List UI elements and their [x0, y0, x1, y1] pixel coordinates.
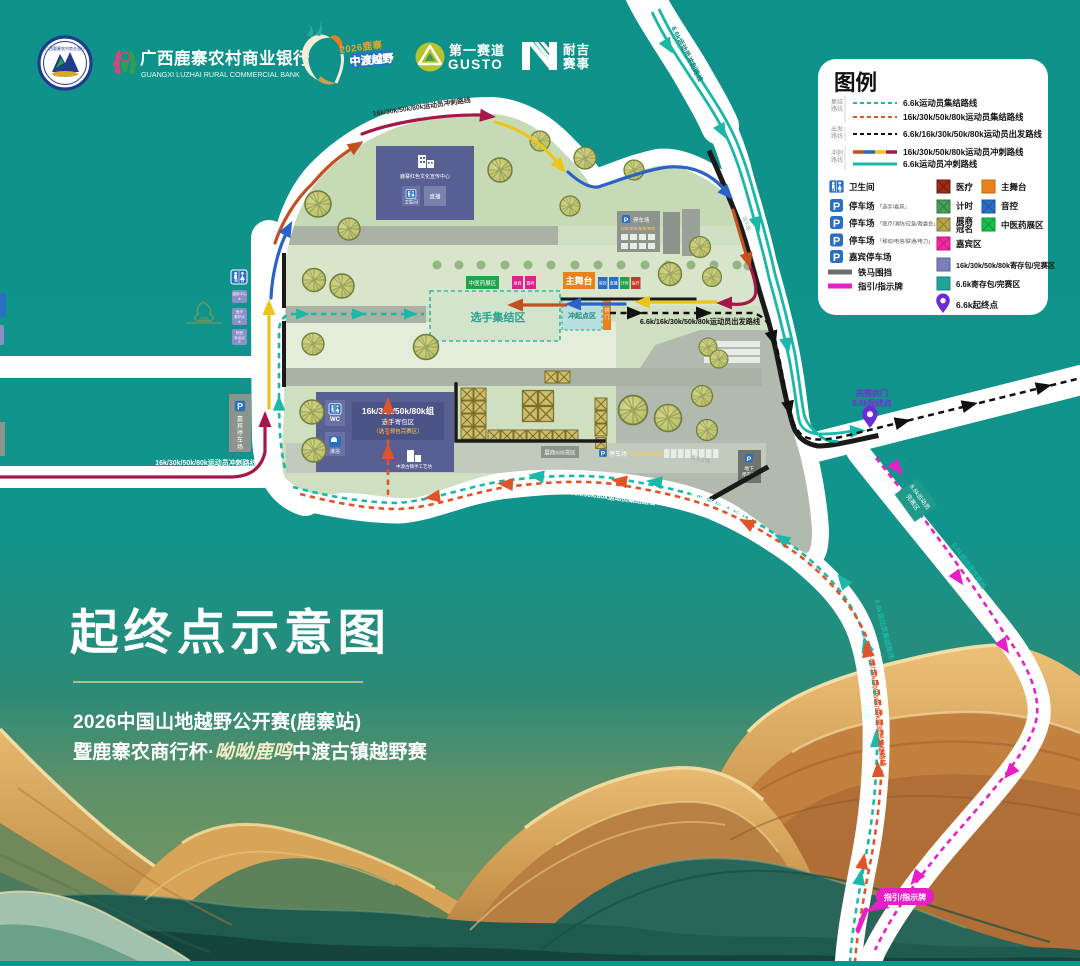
- svg-text:路线: 路线: [831, 105, 843, 113]
- svg-text:门: 门: [604, 314, 609, 321]
- svg-text:音控: 音控: [599, 280, 607, 286]
- svg-text:冲刺: 冲刺: [831, 149, 843, 157]
- svg-text:选手集结区: 选手集结区: [471, 310, 526, 324]
- svg-text:16k/30k/50k/80k运动员冲刺路线: 16k/30k/50k/80k运动员冲刺路线: [155, 458, 257, 467]
- svg-text:停车场: 停车场: [849, 236, 875, 246]
- svg-text:嘉宾区: 嘉宾区: [955, 239, 982, 249]
- svg-text:路线: 路线: [831, 132, 843, 140]
- svg-text:16k/30k/50k/80k运动员集结路线: 16k/30k/50k/80k运动员集结路线: [903, 112, 1024, 122]
- svg-text:2026中国山地越野公开赛(鹿寨站): 2026中国山地越野公开赛(鹿寨站): [73, 710, 361, 733]
- svg-text:16k/30k/50k/80k: 16k/30k/50k/80k: [630, 452, 667, 458]
- svg-text:车: 车: [237, 436, 243, 444]
- svg-text:接驳中心: 接驳中心: [232, 291, 247, 296]
- svg-text:6.6k运动员集结路线: 6.6k运动员集结路线: [903, 98, 978, 108]
- svg-text:音控: 音控: [1001, 201, 1019, 211]
- svg-text:淋浴: 淋浴: [330, 448, 340, 455]
- svg-text:WC: WC: [330, 417, 341, 423]
- svg-text:停车场: 停车场: [849, 201, 875, 211]
- svg-text:出发: 出发: [831, 125, 843, 133]
- svg-text:中渡古镇手工艺坊: 中渡古镇手工艺坊: [396, 463, 432, 470]
- svg-text:「选手/嘉宾」: 「选手/嘉宾」: [877, 203, 910, 211]
- svg-text:铁马围挡: 铁马围挡: [858, 268, 893, 278]
- svg-text:场: 场: [237, 443, 243, 451]
- svg-text:赛事: 赛事: [562, 56, 590, 71]
- svg-text:宾: 宾: [237, 422, 243, 430]
- svg-text:「移动/电信/联通/电力」: 「移动/电信/联通/电力」: [877, 237, 933, 245]
- svg-text:16k/30k/50k/80k寄存包/完赛区: 16k/30k/50k/80k寄存包/完赛区: [956, 261, 1055, 270]
- svg-text:中医药展区: 中医药展区: [469, 279, 497, 287]
- svg-text:医疗: 医疗: [236, 309, 244, 314]
- svg-text:16k/30k/50k/80k: 16k/30k/50k/80k: [621, 226, 657, 232]
- svg-text:冠名: 冠名: [956, 224, 973, 234]
- svg-text:停: 停: [237, 429, 243, 437]
- svg-text:冲起点区: 冲起点区: [568, 311, 596, 320]
- svg-text:路线: 路线: [831, 156, 843, 164]
- svg-text:集结: 集结: [831, 98, 843, 106]
- svg-text:广西鹿寨农村商业银行: 广西鹿寨农村商业银行: [45, 45, 85, 51]
- svg-text:中医药展区: 中医药展区: [1001, 220, 1044, 230]
- svg-text:医疗: 医疗: [956, 182, 974, 192]
- svg-text:香樟: 香樟: [200, 315, 208, 321]
- svg-text:6.6k运动员冲刺路线: 6.6k运动员冲刺路线: [903, 159, 978, 169]
- svg-text:鹿寨红色文化宣传中心: 鹿寨红色文化宣传中心: [400, 173, 450, 180]
- svg-text:停车场: 停车场: [849, 218, 875, 228]
- svg-text:展商600货区: 展商600货区: [544, 449, 576, 457]
- svg-text:暨鹿寨农商行杯·呦呦鹿鸣中渡古镇越野赛: 暨鹿寨农商行杯·呦呦鹿鸣中渡古镇越野赛: [73, 740, 428, 763]
- svg-text:GUSTO: GUSTO: [448, 57, 503, 72]
- svg-text:卫生间: 卫生间: [404, 199, 418, 206]
- svg-text:GUANGXI LUZHAI RURAL COMMERCIA: GUANGXI LUZHAI RURAL COMMERCIAL BANK: [141, 70, 300, 79]
- svg-text:指引/指示牌: 指引/指示牌: [858, 282, 903, 292]
- svg-text:直播: 直播: [610, 280, 618, 286]
- svg-text:指引/指示牌: 指引/指示牌: [884, 892, 926, 902]
- svg-text:广西鹿寨农村商业银行: 广西鹿寨农村商业银行: [140, 48, 310, 68]
- svg-text:起终点示意图: 起终点示意图: [70, 606, 391, 660]
- svg-text:〔选手领包完赛区〕: 〔选手领包完赛区〕: [373, 427, 423, 435]
- svg-text:16k/30k/50k/80k组: 16k/30k/50k/80k组: [362, 406, 435, 416]
- svg-text:主舞台: 主舞台: [1001, 182, 1027, 192]
- svg-text:完赛拱门: 完赛拱门: [856, 388, 888, 398]
- svg-text:嘉宾: 嘉宾: [527, 280, 535, 286]
- svg-text:「医疗/消防/应急/裁委会」: 「医疗/消防/应急/裁委会」: [877, 220, 938, 228]
- svg-text:停车场: 停车场: [609, 450, 627, 458]
- svg-text:拱: 拱: [604, 307, 609, 314]
- svg-text:医疗: 医疗: [632, 280, 640, 286]
- svg-text:救护点: 救护点: [234, 314, 245, 319]
- svg-text:第一赛道: 第一赛道: [449, 43, 505, 58]
- svg-text:计时: 计时: [621, 280, 629, 286]
- svg-text:展商: 展商: [514, 280, 522, 286]
- svg-text:耐吉: 耐吉: [563, 42, 590, 57]
- svg-text:6.6k/16k/30k/50k/80k运动员出发路线: 6.6k/16k/30k/50k/80k运动员出发路线: [903, 129, 1043, 139]
- svg-text:16k/30k/50k/80k运动员冲刺路线: 16k/30k/50k/80k运动员冲刺路线: [903, 147, 1024, 157]
- svg-text:6.6k寄存包/完赛区: 6.6k寄存包/完赛区: [956, 279, 1020, 289]
- svg-text:图例: 图例: [834, 71, 877, 95]
- svg-text:6.6k起终点: 6.6k起终点: [956, 300, 999, 310]
- svg-text:卫生间: 卫生间: [849, 182, 875, 192]
- svg-text:物资: 物资: [236, 330, 244, 335]
- svg-text:6.6k/16k/30k/50k/80k运动员出发路线: 6.6k/16k/30k/50k/80k运动员出发路线: [640, 317, 761, 326]
- svg-text:停车场: 停车场: [633, 216, 650, 224]
- svg-text:地下: 地下: [744, 465, 754, 472]
- svg-text:嘉: 嘉: [237, 415, 243, 423]
- svg-text:计时: 计时: [956, 201, 974, 211]
- svg-text:直播: 直播: [429, 193, 441, 201]
- svg-text:主舞台: 主舞台: [565, 275, 592, 286]
- svg-text:嘉宾停车场: 嘉宾停车场: [848, 252, 892, 262]
